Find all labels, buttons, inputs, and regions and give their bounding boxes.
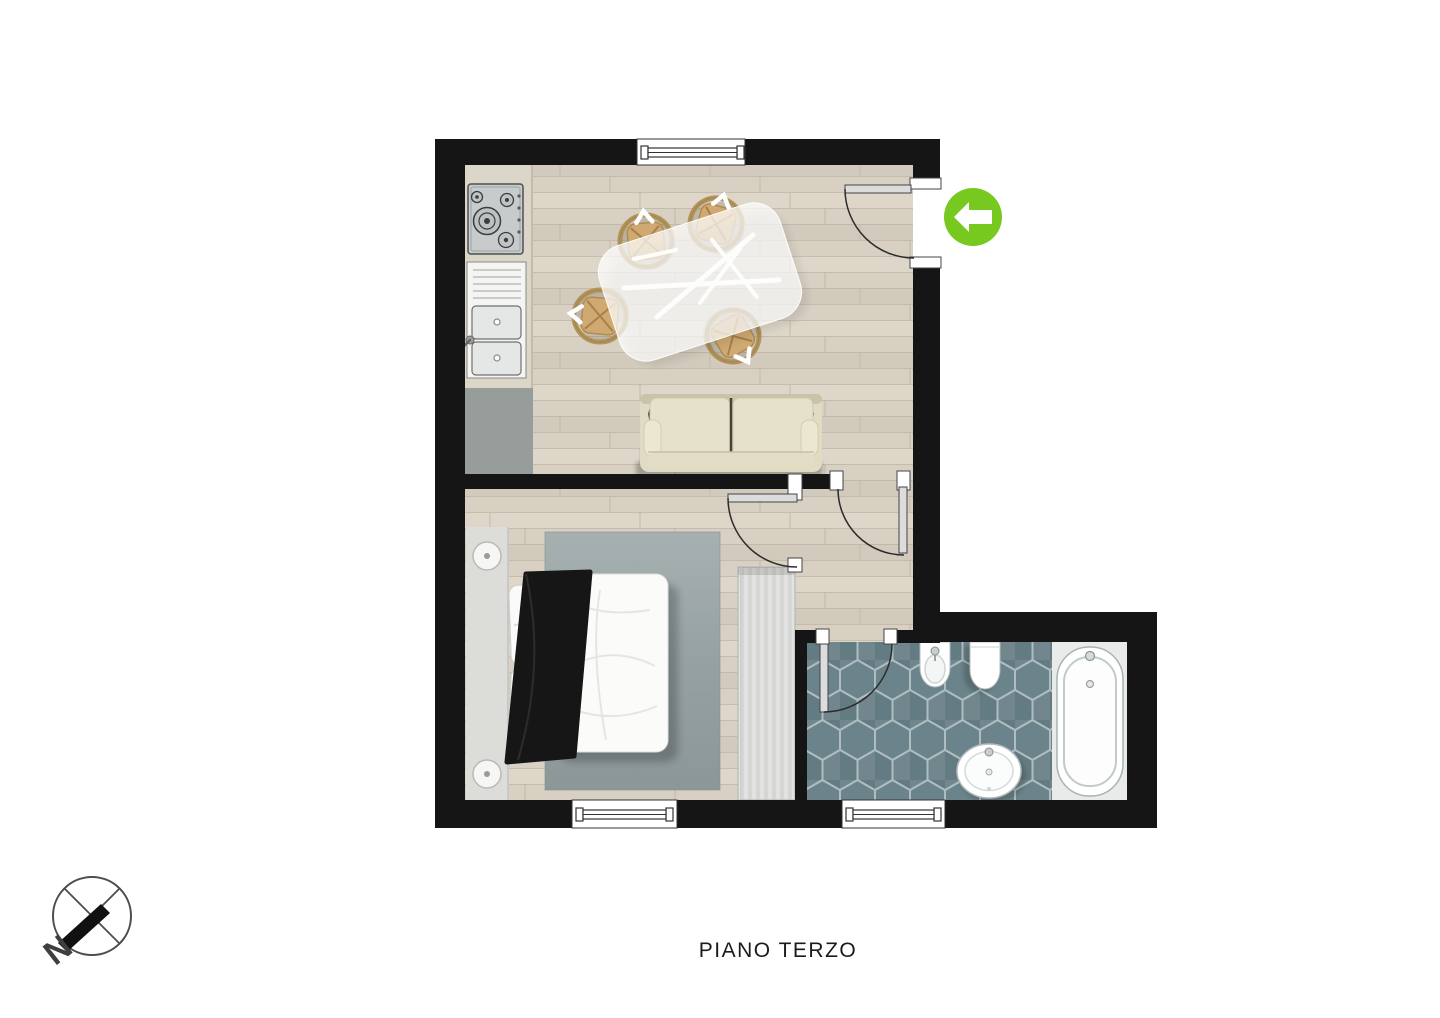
wall-bathroom-left bbox=[795, 630, 807, 828]
wall-bathroom-right bbox=[1127, 612, 1157, 828]
wall-bottom bbox=[435, 800, 1157, 828]
wall-bathroom-top bbox=[940, 612, 1157, 642]
kitchen-counter bbox=[460, 165, 533, 478]
wall-right-upper bbox=[913, 139, 940, 180]
entrance-marker bbox=[944, 188, 1002, 246]
wall-right-lower bbox=[913, 266, 940, 643]
bidet bbox=[920, 642, 950, 687]
double-bed bbox=[507, 572, 678, 762]
window-bottom-bathroom bbox=[842, 800, 945, 828]
floor-plan-title: PIANO TERZO bbox=[699, 939, 857, 962]
bedside-lamp bbox=[473, 760, 501, 788]
bedside-lamp bbox=[473, 542, 501, 570]
kitchen-sink bbox=[460, 262, 526, 378]
window-top-living bbox=[637, 139, 745, 165]
wall-divider-living-bedroom bbox=[450, 474, 790, 489]
hallway-floor bbox=[795, 474, 913, 643]
wardrobe bbox=[738, 567, 795, 800]
sofa bbox=[636, 394, 822, 476]
bathtub bbox=[1052, 642, 1127, 800]
gas-hob bbox=[468, 184, 523, 254]
compass-rose: N bbox=[37, 877, 131, 973]
floor-plan-page: N PIANO TERZO bbox=[0, 0, 1440, 1018]
floor-plan-canvas: N PIANO TERZO bbox=[0, 0, 1440, 1018]
window-bottom-bedroom bbox=[572, 800, 677, 828]
